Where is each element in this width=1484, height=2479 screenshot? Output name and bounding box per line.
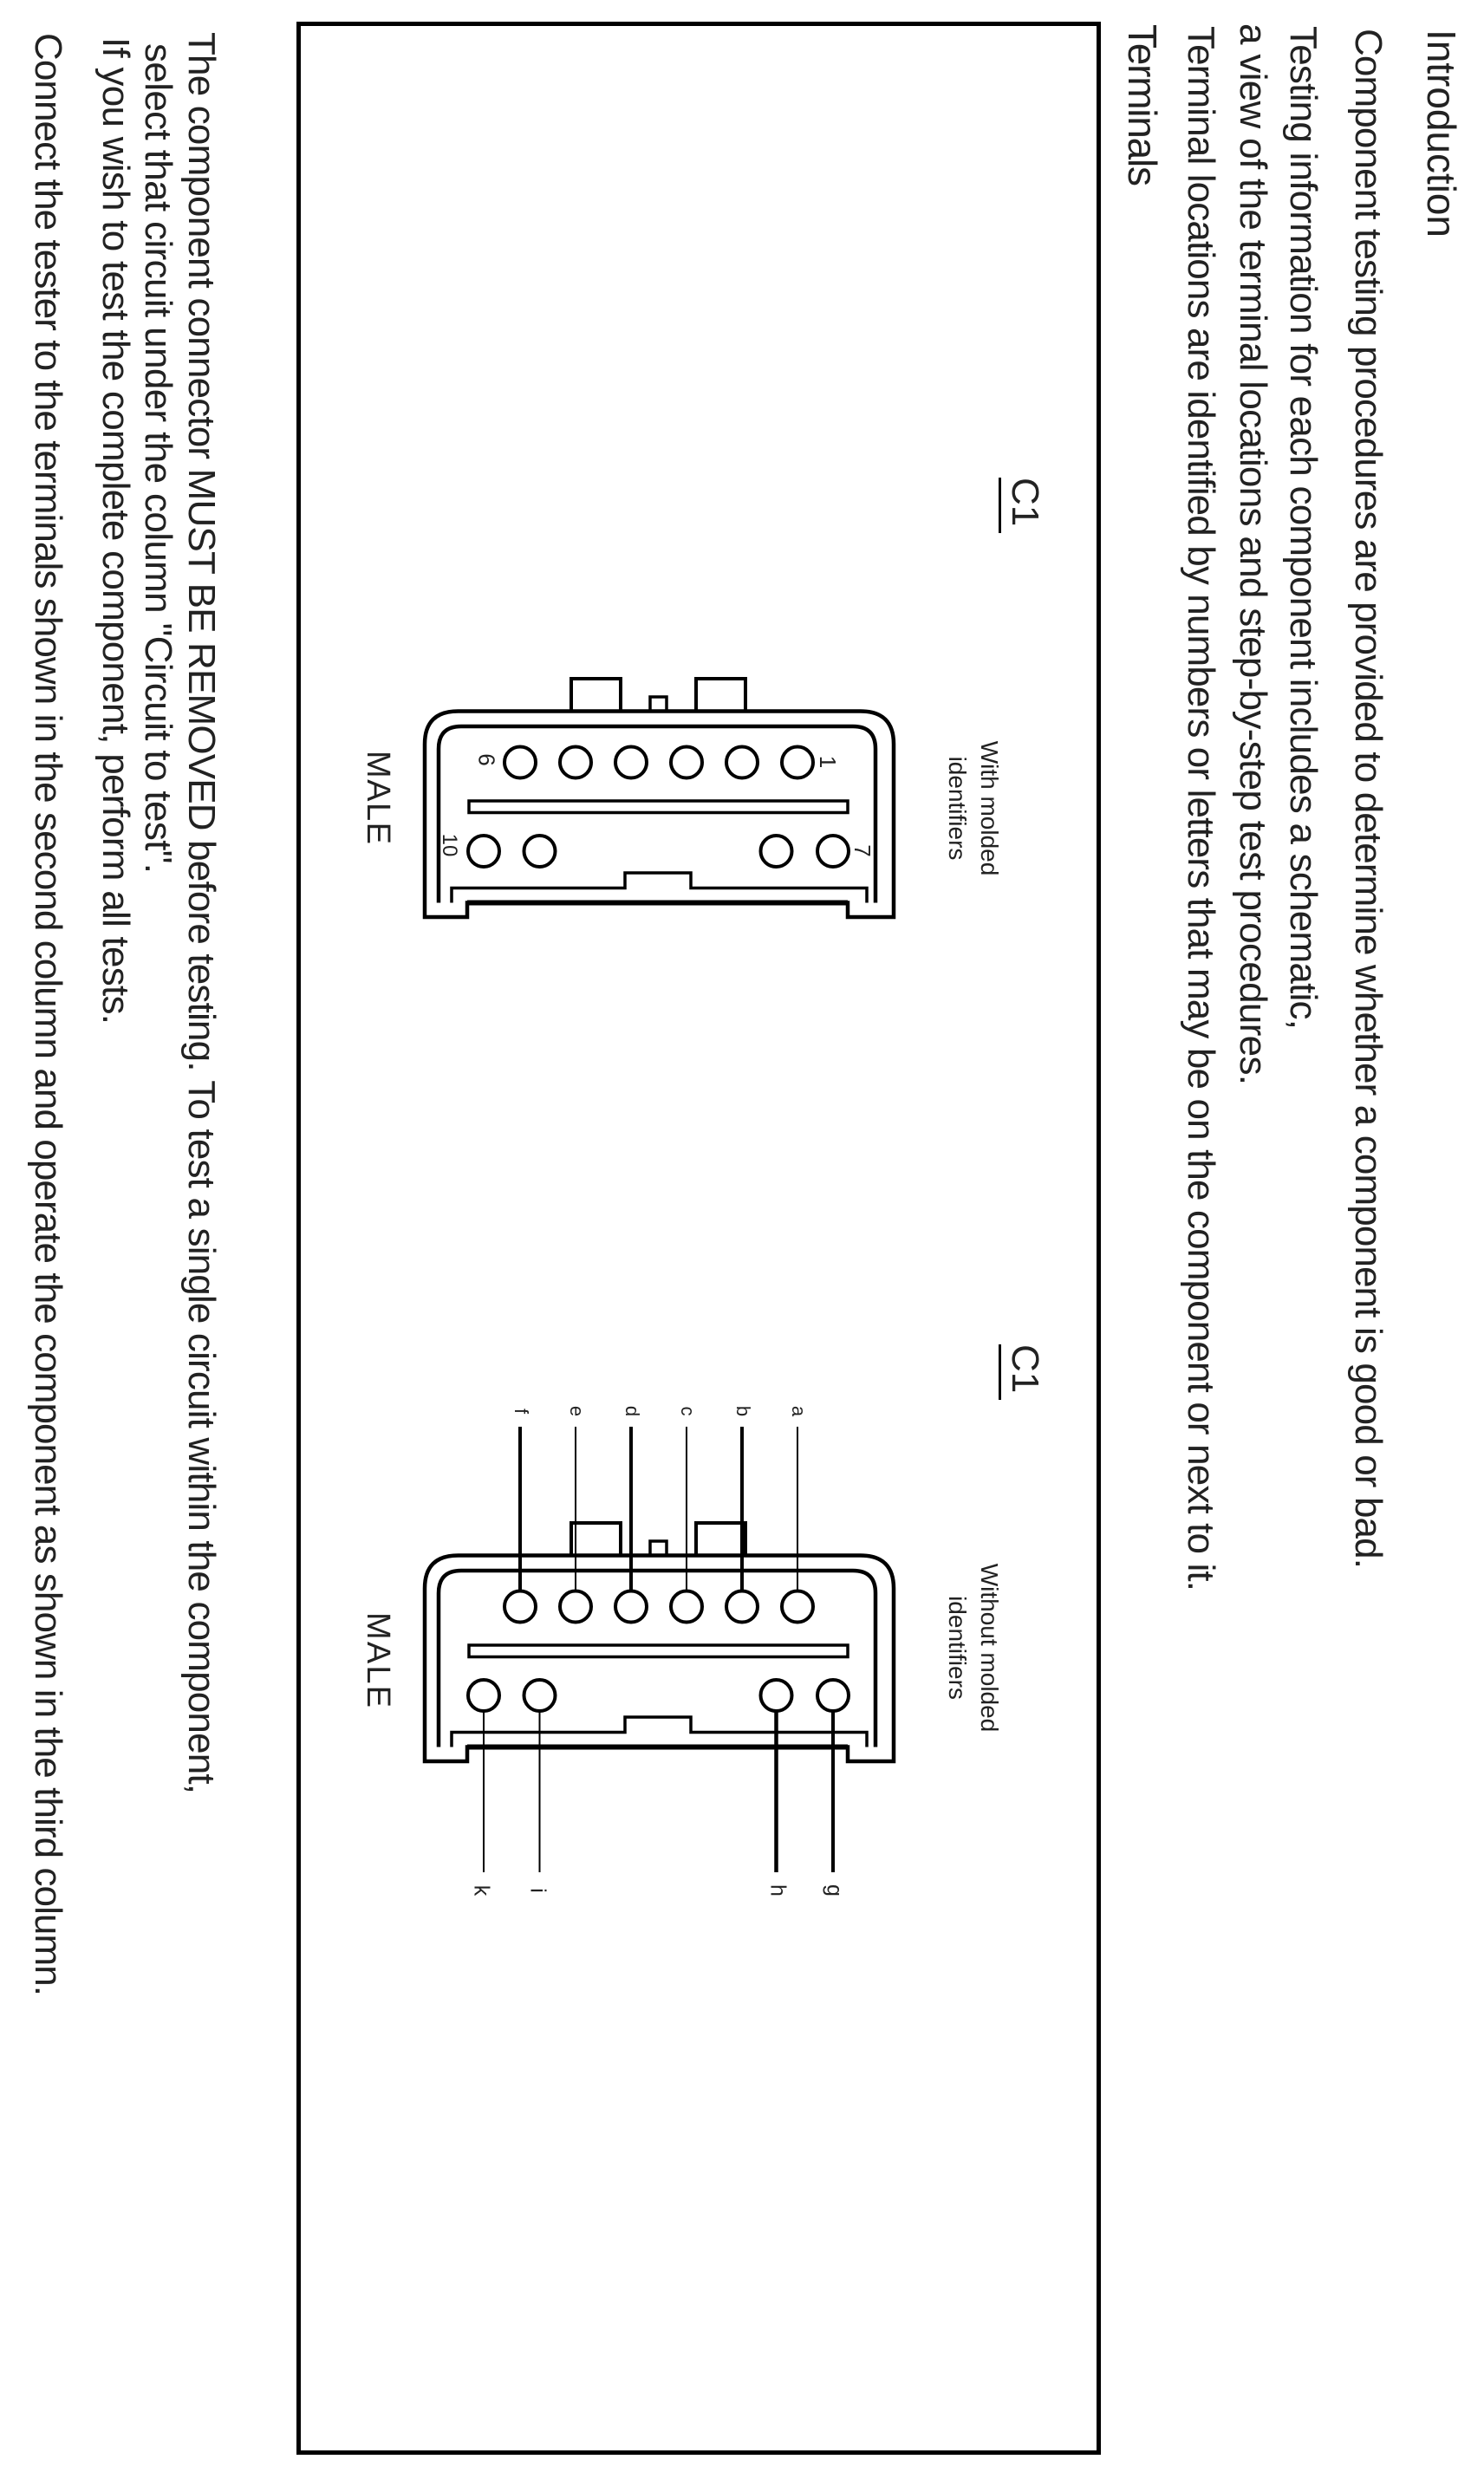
svg-text:If you wish to test the comple: If you wish to test the complete compone… <box>94 37 137 1025</box>
svg-text:select that circuit under the: select that circuit under the column "Ci… <box>137 43 179 874</box>
svg-text:Component testing procedures a: Component testing procedures are provide… <box>1347 29 1390 1569</box>
svg-text:The component connector MUST B: The component connector MUST BE REMOVED … <box>180 32 223 1794</box>
svg-text:Terminal locations are identif: Terminal locations are identified by num… <box>1180 26 1222 1591</box>
svg-text:10: 10 <box>438 834 461 857</box>
svg-text:d: d <box>622 1406 643 1416</box>
svg-text:Testing information for each c: Testing information for each component i… <box>1282 26 1325 1030</box>
svg-text:Without molded: Without molded <box>976 1564 1003 1733</box>
svg-text:g: g <box>823 1884 847 1897</box>
svg-text:6: 6 <box>474 753 500 765</box>
svg-text:MALE: MALE <box>360 1612 396 1708</box>
svg-text:e: e <box>566 1406 588 1416</box>
svg-text:k: k <box>470 1885 494 1897</box>
svg-text:C1: C1 <box>1004 478 1046 526</box>
svg-text:f: f <box>511 1409 532 1415</box>
svg-text:1: 1 <box>815 756 841 768</box>
svg-text:With molded: With molded <box>976 741 1003 876</box>
svg-text:Terminals: Terminals <box>1120 24 1165 186</box>
svg-text:b: b <box>732 1406 754 1416</box>
svg-text:Introduction: Introduction <box>1419 29 1464 237</box>
svg-text:identifiers: identifiers <box>944 757 971 861</box>
svg-text:C1: C1 <box>1004 1344 1046 1393</box>
svg-text:7: 7 <box>849 844 875 856</box>
svg-text:i: i <box>526 1888 550 1893</box>
svg-text:a: a <box>788 1406 810 1417</box>
svg-text:identifiers: identifiers <box>944 1596 971 1700</box>
svg-text:a view of the terminal locatio: a view of the terminal locations and ste… <box>1232 23 1274 1085</box>
svg-text:Connect the tester to the term: Connect the tester to the terminals show… <box>27 33 69 1996</box>
svg-text:c: c <box>677 1407 699 1416</box>
svg-text:h: h <box>766 1884 791 1897</box>
svg-text:MALE: MALE <box>360 751 396 844</box>
